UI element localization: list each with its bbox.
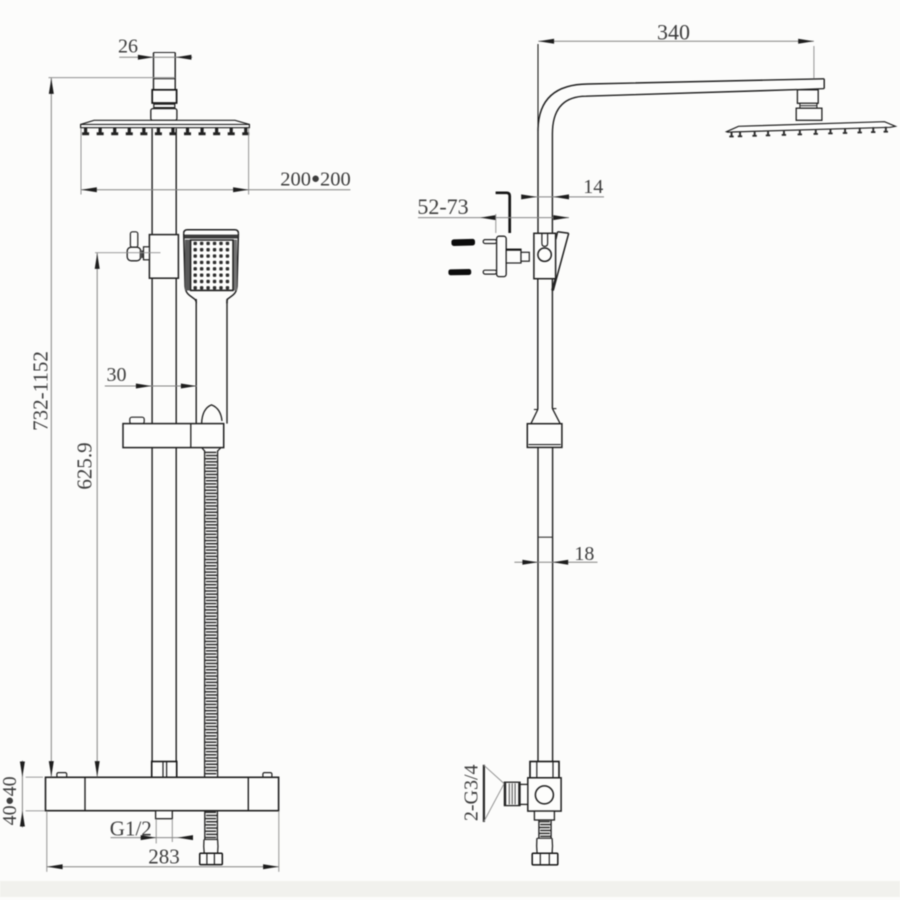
svg-text:G1/2: G1/2	[110, 817, 152, 841]
svg-text:52-73: 52-73	[417, 194, 468, 219]
svg-text:732-1152: 732-1152	[29, 351, 53, 431]
svg-text:200●200: 200●200	[280, 168, 351, 190]
svg-text:14: 14	[583, 176, 603, 198]
svg-text:340: 340	[657, 20, 690, 45]
svg-text:26: 26	[118, 36, 138, 58]
svg-text:625.9: 625.9	[73, 442, 97, 489]
svg-text:18: 18	[574, 543, 594, 565]
svg-text:283: 283	[148, 845, 180, 869]
svg-text:30: 30	[107, 364, 127, 386]
svg-text:2-G3/4: 2-G3/4	[461, 764, 483, 821]
